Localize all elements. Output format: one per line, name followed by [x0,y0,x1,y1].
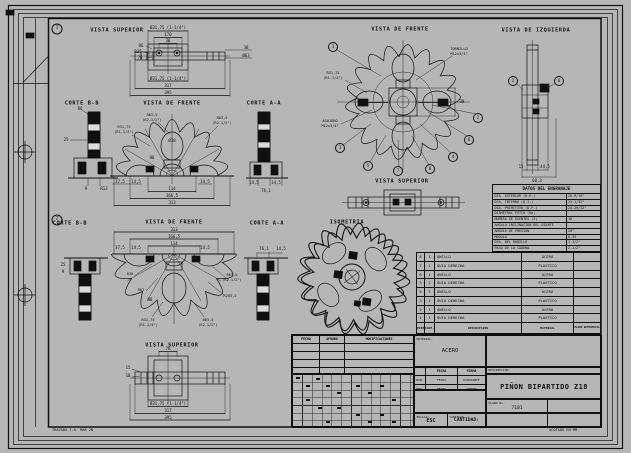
bom-material: PLASTICO [522,279,574,287]
title-g2-corte-bb: CORTE B-B [53,221,87,226]
dim-label: 9 [62,270,64,274]
bom-material: ACERO [522,288,574,296]
dim-label: 114 [168,187,175,191]
row-label: NUMERO DE DIENTES (Z) [493,217,567,222]
view-izq-linework [516,40,556,178]
bottom-row [486,413,602,428]
bom-cant: 1 [425,306,435,314]
part-balloon: 6 [464,135,474,145]
sign-header-firma: FIRMA [458,368,485,375]
view-fr-linework [337,40,476,170]
dim-label: R6 [78,107,83,111]
escala-label: ESCALA: [417,416,430,419]
view-iso-linework [291,216,417,342]
rev-empty-row [293,351,413,359]
tolerance-grid [292,374,414,428]
bom-cant: 1 [425,297,435,305]
balloon-number: 6 [468,138,471,142]
table-row: 11GUIA DERECHAPLASTICO [417,314,600,323]
title-g2-corte-aa: CORTE A-A [250,221,284,226]
callout: (R2-1/2") [142,119,161,123]
dim-label: 38 [244,46,249,50]
rev-empty-row [293,359,413,367]
gear-data-table: DATOS DEL ENGRANAJE DIA. EXTERIOR (D.E.)… [492,184,601,252]
rev-header-fecha: FECHA [293,336,320,343]
callout: (R2-1/2") [222,279,241,283]
callout: (R1-1/4") [114,131,133,135]
acotado-note: ACOTADO EN MM. [549,429,579,433]
drawing-sheet: 1 2 VISTA SUPERIOR CORTE B-B VISTA DE FR… [0,0,631,453]
trazado-note: TRAZADO J.A. MAR 2N [52,429,93,433]
dim-label: 14,5 [131,246,141,250]
bottom-empty-cell [548,414,601,427]
bom-pieza: 5 [417,279,425,287]
part-balloon: 3 [335,143,345,153]
part-balloon: 2 [473,113,483,123]
empty-box [414,390,486,413]
dim-label: 395 [164,416,171,420]
dim-label: 170 [164,33,171,37]
bom-material: ACERO [522,271,574,279]
bom-descripcion: GUIA DERECHA [435,262,522,270]
callout: R63 [138,289,145,293]
dim-label: 37,5 [115,246,125,250]
bom-pieza: 1 [417,314,425,322]
signatures-table: FECHA FIRMA DIB. FECHA DIBUJANTE REV. FE… [414,367,486,390]
bom-descripcion: GUIA DERECHA [435,297,522,305]
dim-label: 317 [164,84,171,88]
bom-material: ACERO [522,253,574,261]
plano-empty-cell [548,400,601,412]
dim-label: 25 [64,138,69,142]
bom-plano [574,262,600,270]
dim-label: 44,5 [540,165,550,169]
dim-label: 166,5 [166,194,178,198]
row-value: 24-29/32" [567,206,601,211]
dim-label: 76,1 [259,247,269,251]
dim-label: 14,5 [271,181,281,185]
sign-row-dib-firma: DIBUJANTE [458,376,485,384]
dim-label: 37,5 [115,180,125,184]
callout: (R2-1/2") [198,324,217,328]
bom-pieza: 6 [417,271,425,279]
bom-material: ACERO [522,306,574,314]
bottom-empty-cell [487,414,548,427]
view-sup-linework [342,190,465,215]
callout: (R2-1/2") [212,122,231,126]
view-g1-corte-aa-linework [246,112,288,186]
row-label: MODULO [493,235,567,240]
bom-pieza: 8 [417,253,425,261]
bom-descripcion: ANILLO [435,271,522,279]
bom-material: PLASTICO [522,262,574,270]
dim-label: 15 [126,366,131,370]
callout: (R1-1/4") [323,77,342,81]
title-izq: VISTA DE IZQUIERDA [502,28,571,33]
parts-list-header: PIEZACANT.DESCRIPCIONMATERIALPLANO REFER… [417,323,600,333]
bom-pieza: 7 [417,262,425,270]
dim-label: 9 [85,187,87,191]
table-row: 31GUIA DERECHAPLASTICO [417,297,600,306]
row-value: 2-1/2" [567,246,601,251]
callout: M12x3/4" [450,53,467,57]
balloon-number: 8 [429,167,432,171]
dim-label: R35 [134,50,141,54]
table-row: 41ANILLOACERO [417,288,600,297]
dim-label: Ø38 [168,139,175,143]
bom-header-descripcion: DESCRIPCION [435,323,522,333]
bom-descripcion: ANILLO [435,306,522,314]
bom-plano [574,288,600,296]
rev-header-aprobo: APROBO [320,336,345,343]
bom-pieza: 3 [417,297,425,305]
registration-mark-top [14,141,36,163]
material-value: ACERO [415,336,485,366]
group1-marker-label: 1 [56,27,59,32]
dim-label: Ø31,75 (1-1/4") [150,402,186,406]
dim-label: 114 [170,242,177,246]
row-label: DIA. EXTERIOR (D.E.) [493,194,567,199]
row-label: DIAMETRAL PITCH (Dp) [493,211,567,216]
dim-label: 10 [126,374,131,378]
material-box: MATERIAL: ACERO [414,335,486,367]
row-label: PASO DE LA CADENA [493,246,567,251]
dim-label: 78 [166,347,171,351]
part-balloon: 2 [508,76,518,86]
part-balloon: 5 [363,161,373,171]
part-balloon: 8 [425,164,435,174]
dim-label: H8 [148,298,153,302]
view-g1-corte-bb-linework [68,110,118,186]
dim-label: Ø31,75 (1-1/4") [150,26,186,30]
dim-label: 14,5 [276,247,286,251]
part-balloon: 7 [393,166,403,176]
bom-pieza: 4 [417,288,425,296]
part-balloon: 6 [554,76,564,86]
row-label: DIA. DEL RODILLO [493,240,567,245]
bom-header-material: MATERIAL [522,323,574,333]
bom-descripcion: ANILLO [435,253,522,261]
rev-header-modificaciones: MODIFICACIONES [345,336,413,343]
dim-label: H8 [150,156,155,160]
bom-header-plano: PLANO REFERENCIA [574,323,600,333]
callout: R203,2 [224,295,237,299]
dim-label: 395 [164,91,171,95]
table-row: 21ANILLOACERO [417,306,600,315]
balloon-number: 6 [558,79,561,83]
dim-label: 38 [460,100,465,104]
revisions-table: FECHA APROBO MODIFICACIONES [292,335,414,374]
material-label: MATERIAL: [417,338,433,341]
bom-plano [574,297,600,305]
bom-material: PLASTICO [522,297,574,305]
view-g2-corte-bb-linework [64,258,108,320]
table-row: 61ANILLOACERO [417,271,600,280]
part-balloon: 4 [448,152,458,162]
dim-label: 14,5 [200,180,210,184]
row-label: DIA. PRIMITIVO (D.P.) [493,206,567,211]
bom-header-pieza: PIEZA [417,323,425,333]
dim-label: 78 [166,39,171,43]
bom-plano [574,306,600,314]
descripcion-box: PIÑON BIPARTIDO Z18 [486,374,602,399]
descripcion-label: DESCRIPCION: [489,369,511,372]
table-row: 71GUIA DERECHAPLASTICO [417,262,600,271]
sign-row-dib-label: DIB. [415,376,426,384]
bom-plano [574,314,600,322]
title-g1-corte-aa: CORTE A-A [247,101,281,106]
dim-label: 317 [164,409,171,413]
title-g1-frente: VISTA DE FRENTE [143,101,200,106]
right-empty-box [486,335,602,367]
plano-cell: PLANO No. 7101 [487,400,548,412]
row-value: 26-9/16" [567,194,601,199]
parts-list-table: 81ANILLOACERO 71GUIA DERECHAPLASTICO 61A… [416,252,601,334]
row-label: ANGULO DE PRESION [493,229,567,234]
bom-cant: 1 [425,279,435,287]
bom-descripcion: GUIA DERECHA [435,279,522,287]
row-label: DIA. INTERNO (D.I.) [493,200,567,205]
title-iso: ISOMETRIA [330,220,364,225]
title-g2-superior: VISTA SUPERIOR [145,343,199,348]
row-value [567,211,601,216]
table-row: PASO DE LA CADENA2-1/2" [493,246,600,251]
table-row: 51GUIA DERECHAPLASTICO [417,279,600,288]
dim-label: 313 [170,228,177,232]
rev-empty-row [293,343,413,351]
view-g2-superior-linework [130,351,230,422]
balloon-number: 1 [332,45,335,49]
balloon-number: 5 [367,164,370,168]
registration-mark-bottom [14,284,36,306]
bom-cant: 1 [425,271,435,279]
row-value [567,223,601,228]
row-value: 18 [567,217,601,222]
view-g1-superior-linework [130,30,252,97]
sign-row-dib-fecha: FECHA [426,376,458,384]
bom-plano [574,253,600,261]
dim-label: 313 [168,201,175,205]
plano-label: PLANO No. [489,402,505,405]
drawing-title: PIÑON BIPARTIDO Z18 [487,375,601,398]
dim-label: 166,5 [168,235,180,239]
plano-row: PLANO No. 7101 [486,399,602,413]
row-label: ANGULO INCLINACION DEL DIENTE [493,223,567,228]
balloon-number: 7 [397,169,400,173]
dim-label: Ø31,75 (1-1/4") [150,77,186,81]
bom-plano [574,279,600,287]
title-sup: VISTA SUPERIOR [375,179,429,184]
title-g1-superior: VISTA SUPERIOR [90,28,144,33]
group1-marker: 1 [52,24,63,35]
sign-header-fecha: FECHA [426,368,458,375]
dim-label: 14,5 [249,181,259,185]
row-value: 23-1/32" [567,200,601,205]
row-value: 1-1/2" [567,240,601,245]
balloon-number: 2 [512,79,515,83]
row-value: 20° [567,229,601,234]
bom-descripcion: ANILLO [435,288,522,296]
view-g2-corte-aa-linework [244,252,288,320]
bom-plano [574,271,600,279]
title-g2-frente: VISTA DE FRENTE [145,220,202,225]
dim-label: 76,1 [261,189,271,193]
bom-header-cant: CANT. [425,323,435,333]
dim-label: R13 [100,187,107,191]
table-row: 81ANILLOACERO [417,253,600,262]
dim-label: 25 [61,263,66,267]
gear-data-title: DATOS DEL ENGRANAJE [493,185,600,194]
rev-empty-row [293,367,413,374]
callout: (R1-1/4") [138,324,157,328]
bom-cant: 1 [425,253,435,261]
balloon-number: 2 [477,116,480,120]
dim-label: Ø63 [242,54,249,58]
escala-cantidad-row: ESCALA: ESC CANTIDAD CANTIDAD: [414,413,486,428]
balloon-number: 3 [339,146,342,150]
dim-label: 76 [138,56,143,60]
dim-label: 60,3 [532,179,542,183]
balloon-number: 4 [452,155,455,159]
escala-cell: ESCALA: ESC [415,414,448,427]
cantidad-label: CANTIDAD [450,416,464,419]
dim-label: 14,5 [131,180,141,184]
callout: M12x3/4" [321,125,338,129]
bom-cant: 1 [425,288,435,296]
title-block: FECHA APROBO MODIFICACIONES MATERIAL: AC… [291,334,601,427]
dim-label: R6 [139,44,144,48]
callout: R38 [127,273,134,277]
view-g2-frente-linework [111,192,236,324]
tolerance-grid-marks [296,377,300,379]
bom-cant: 1 [425,262,435,270]
part-balloon: 1 [328,42,338,52]
bom-cant: 1 [425,314,435,322]
title-fr: VISTA DE FRENTE [371,27,428,32]
dim-label: 14,5 [200,246,210,250]
row-value: 6,35 [567,235,601,240]
cantidad-cell: CANTIDAD CANTIDAD: [448,414,485,427]
bom-descripcion: GUIA DERECHA [435,314,522,322]
bom-pieza: 2 [417,306,425,314]
bom-material: PLASTICO [522,314,574,322]
descripcion-strip: DESCRIPCION: [486,367,602,374]
dim-label: 15 [519,165,524,169]
